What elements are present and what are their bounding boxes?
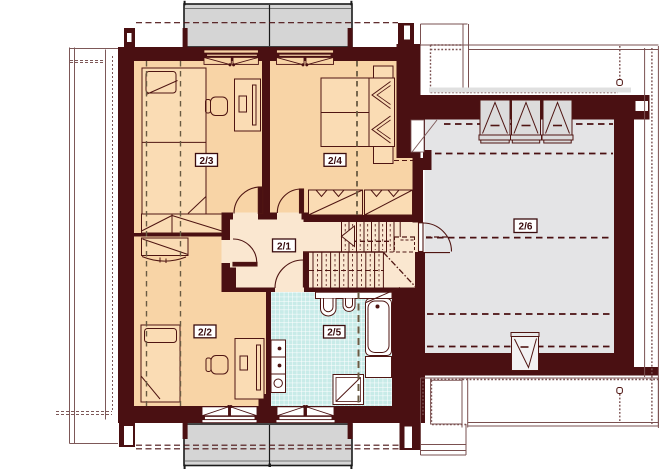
svg-text:2/3: 2/3 (200, 156, 214, 167)
svg-text:2/5: 2/5 (327, 328, 341, 339)
svg-text:2/6: 2/6 (519, 222, 533, 233)
svg-text:2/2: 2/2 (198, 327, 212, 338)
svg-text:2/1: 2/1 (277, 241, 291, 252)
svg-text:2/4: 2/4 (328, 156, 342, 167)
